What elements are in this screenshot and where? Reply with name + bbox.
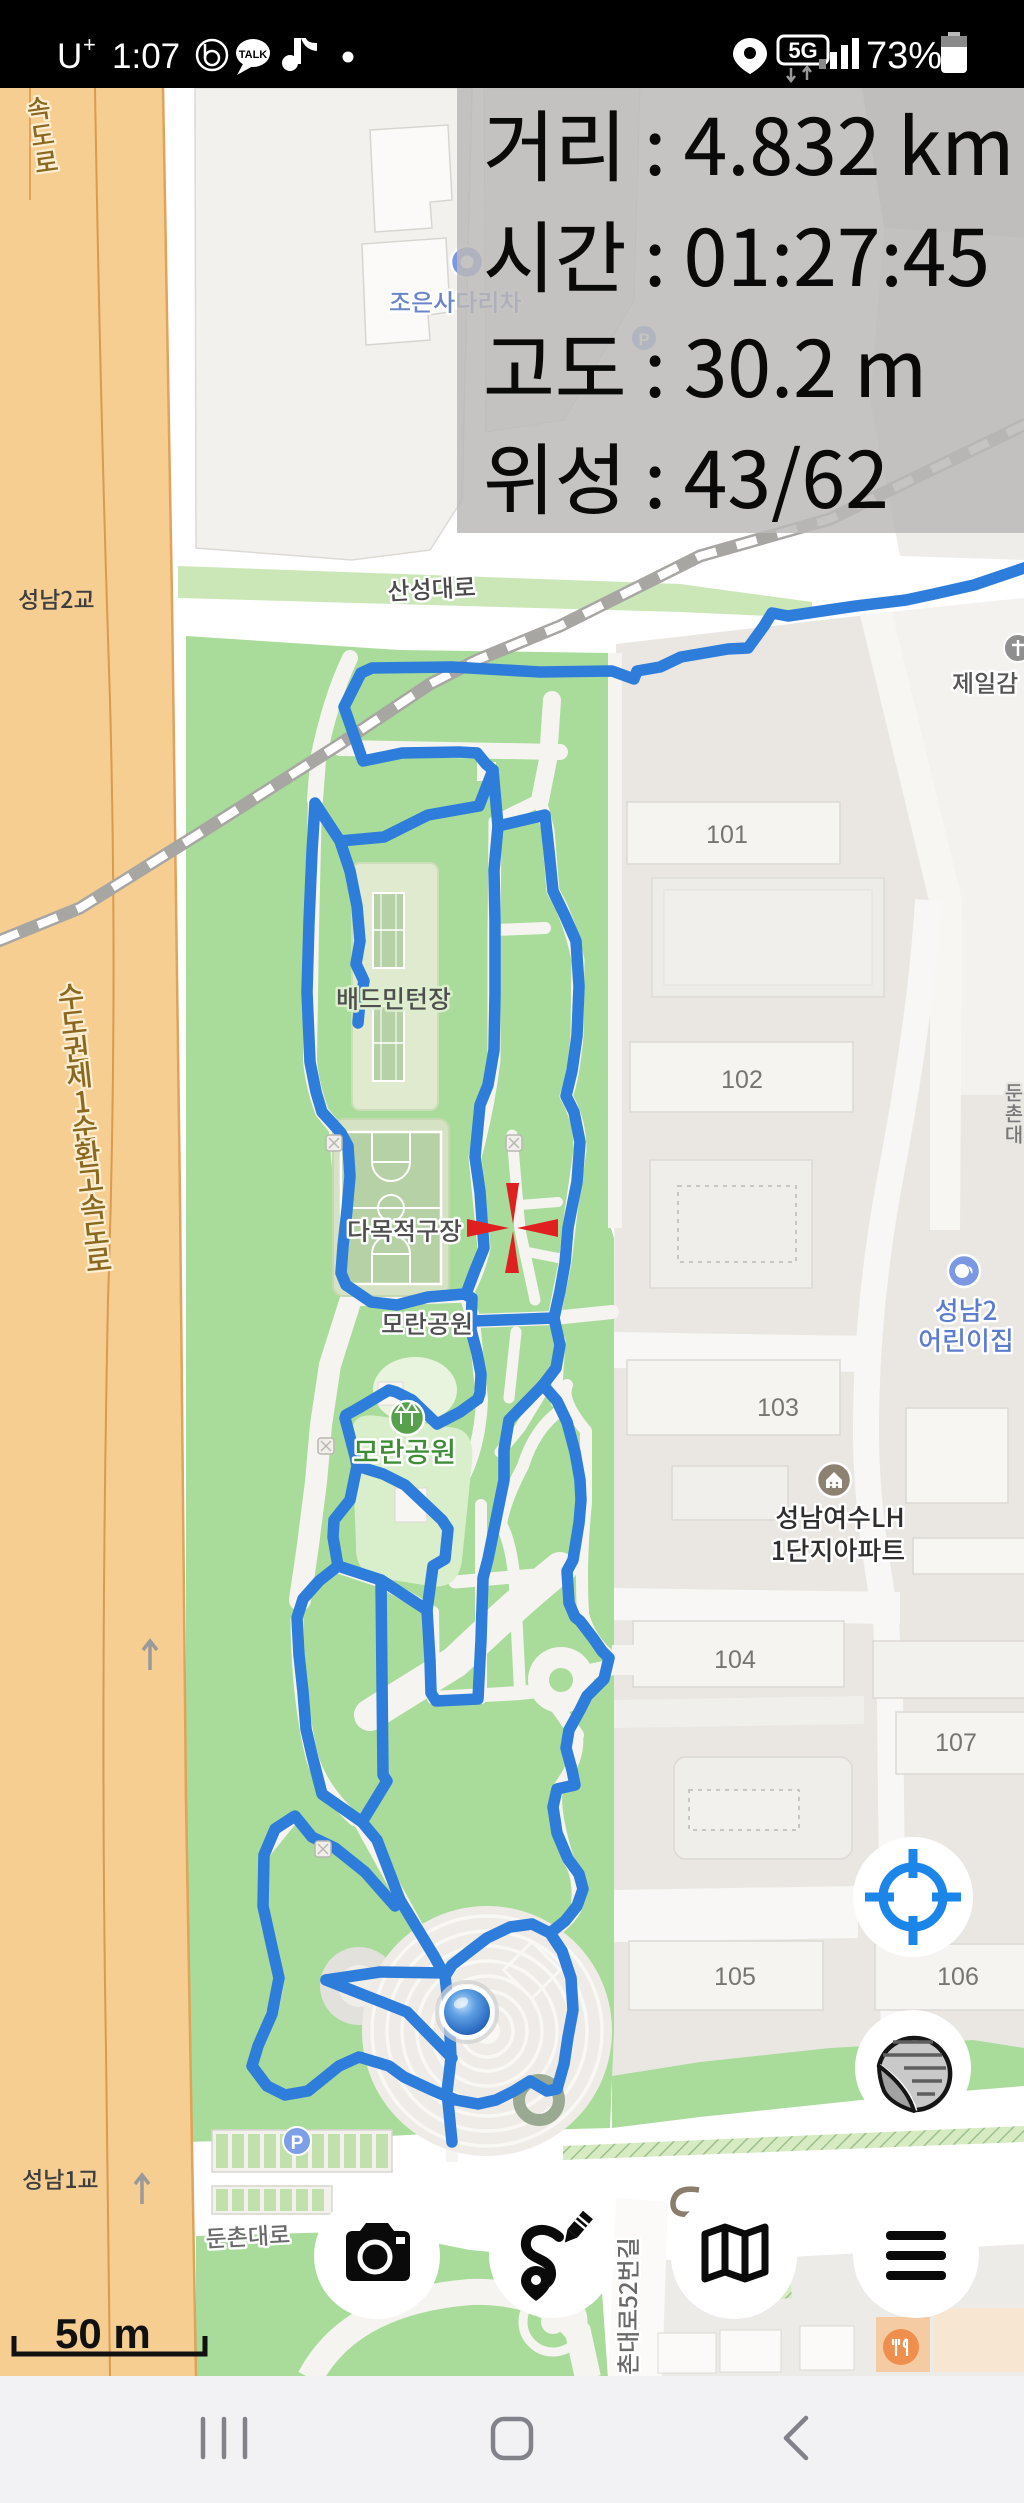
svg-text:107: 107 [935, 1729, 977, 1757]
svg-text:103: 103 [757, 1394, 799, 1422]
svg-text:U: U [57, 37, 82, 76]
svg-text:5G: 5G [788, 38, 817, 63]
svg-text:+: + [83, 32, 96, 57]
svg-text:73%: 73% [866, 35, 942, 77]
svg-text:102: 102 [721, 1066, 763, 1094]
svg-text:106: 106 [937, 1963, 979, 1991]
svg-text:P: P [291, 2133, 304, 2154]
svg-text:50 m: 50 m [55, 2310, 151, 2357]
svg-text:101: 101 [706, 821, 748, 849]
svg-text:105: 105 [714, 1963, 756, 1991]
svg-text:1:07: 1:07 [112, 37, 180, 76]
svg-text:TALK: TALK [239, 49, 268, 61]
svg-text:104: 104 [714, 1646, 756, 1674]
